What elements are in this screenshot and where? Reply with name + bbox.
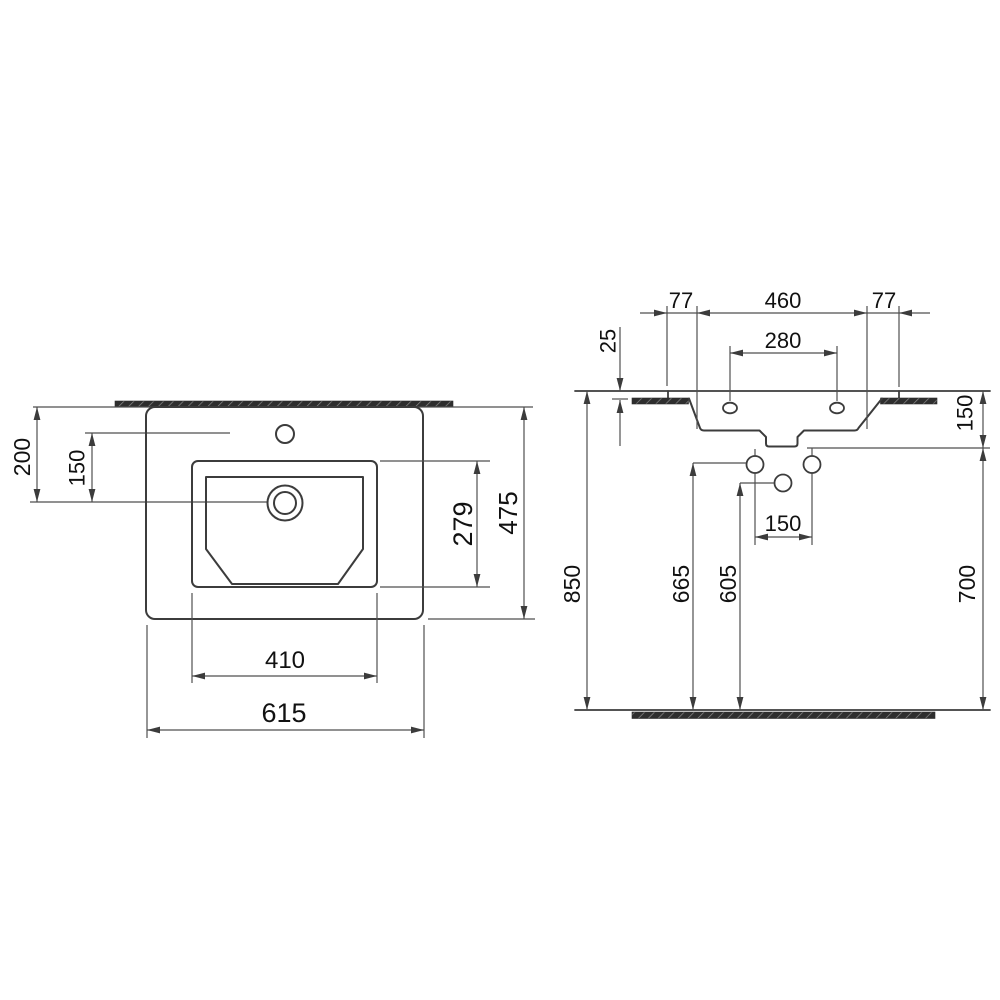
dim-arrow bbox=[364, 673, 377, 680]
dim-label-supply-height: 665 bbox=[668, 565, 694, 603]
dim-arrow bbox=[584, 391, 591, 404]
dim-arrow bbox=[584, 697, 591, 710]
dim-arrow bbox=[474, 461, 481, 474]
dim-label-fixing-hole-spacing: 280 bbox=[765, 328, 802, 353]
dim-label-faucet-to-drain: 150 bbox=[65, 450, 90, 487]
dim-arrow bbox=[737, 697, 744, 710]
supply-connection-right bbox=[804, 456, 821, 473]
dim-arrow bbox=[899, 310, 912, 317]
technical-drawing-page: 200 150 279 475 410 615 bbox=[0, 0, 1000, 1000]
dim-arrow bbox=[89, 433, 96, 446]
dim-label-rim-height: 850 bbox=[559, 565, 585, 603]
dim-arrow bbox=[854, 310, 867, 317]
dim-arrow bbox=[521, 407, 528, 420]
drain-connection bbox=[775, 475, 792, 492]
dim-label-edge-to-drain: 200 bbox=[9, 438, 35, 476]
floor-section-bar bbox=[632, 712, 935, 719]
dim-arrow bbox=[617, 378, 624, 391]
dim-arrow bbox=[521, 606, 528, 619]
dim-arrow bbox=[192, 673, 205, 680]
dim-arrow bbox=[147, 727, 160, 734]
top-view: 200 150 279 475 410 615 bbox=[9, 401, 535, 738]
dim-arrow bbox=[34, 407, 41, 420]
faucet-hole bbox=[276, 425, 294, 443]
dim-arrow bbox=[654, 310, 667, 317]
washbasin-dimension-drawing: 200 150 279 475 410 615 bbox=[0, 0, 1000, 1000]
dim-label-drain-height: 605 bbox=[715, 565, 741, 603]
dim-arrow bbox=[980, 697, 987, 710]
basin-bowl-slopes bbox=[206, 477, 363, 584]
dim-label-rim-above-counter: 25 bbox=[596, 329, 621, 353]
dim-arrow bbox=[690, 697, 697, 710]
counter-section-bar-right bbox=[881, 398, 938, 404]
dim-arrow bbox=[690, 463, 697, 476]
dim-arrow bbox=[697, 310, 710, 317]
dim-arrow bbox=[411, 727, 424, 734]
bowl-profile bbox=[689, 399, 882, 447]
dim-arrow bbox=[980, 448, 987, 461]
front-view: 77 460 77 280 25 850 665 605 bbox=[559, 288, 990, 719]
dim-arrow bbox=[737, 483, 744, 496]
counter-section-bar-left bbox=[632, 398, 689, 404]
dim-label-rim-to-underside: 150 bbox=[953, 395, 978, 432]
fixing-hole-right bbox=[830, 403, 844, 414]
dim-label-overall-width: 615 bbox=[261, 698, 306, 728]
dim-label-supply-spacing: 150 bbox=[765, 511, 802, 536]
supply-connection-left bbox=[747, 456, 764, 473]
dim-arrow bbox=[34, 489, 41, 502]
dim-arrow bbox=[89, 489, 96, 502]
dim-arrow bbox=[617, 400, 624, 413]
dim-label-overall-depth: 475 bbox=[493, 491, 523, 534]
dim-arrow bbox=[730, 350, 743, 357]
dim-label-underside-height: 700 bbox=[954, 565, 980, 603]
drain-hole-inner bbox=[274, 492, 296, 514]
dim-arrow bbox=[824, 350, 837, 357]
dim-arrow bbox=[980, 391, 987, 404]
dim-label-left-offset: 77 bbox=[669, 288, 693, 313]
drain-hole-outer bbox=[268, 486, 303, 521]
fixing-hole-left bbox=[723, 403, 737, 414]
dim-label-basin-width: 410 bbox=[265, 647, 305, 674]
dim-arrow bbox=[980, 435, 987, 448]
dim-label-basin-depth: 279 bbox=[448, 501, 478, 546]
dim-label-right-offset: 77 bbox=[872, 288, 896, 313]
dim-arrow bbox=[474, 574, 481, 587]
counter-section-bar bbox=[115, 401, 453, 407]
dim-label-opening-width: 460 bbox=[765, 288, 802, 313]
